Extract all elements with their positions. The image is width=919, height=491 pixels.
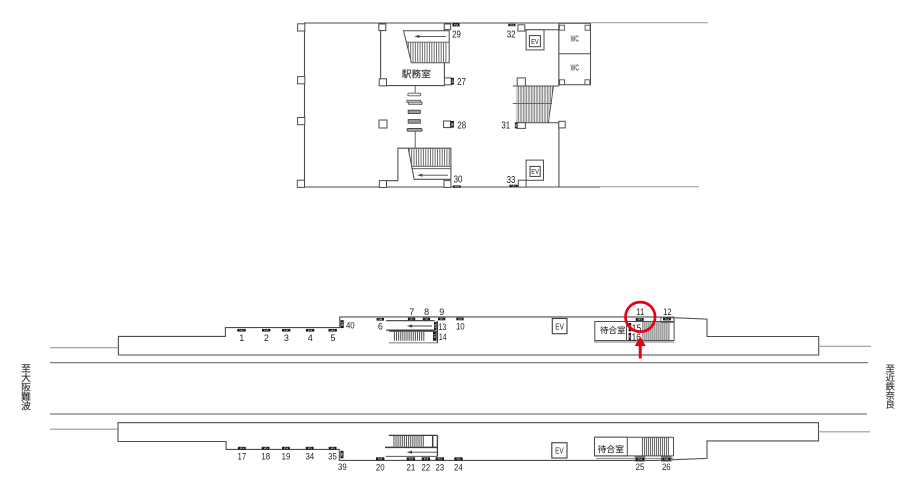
svg-text:32: 32 [507, 30, 516, 41]
svg-text:17: 17 [238, 451, 247, 461]
svg-text:11: 11 [636, 307, 644, 317]
svg-text:8: 8 [424, 307, 429, 317]
svg-text:40: 40 [346, 321, 355, 331]
svg-text:18: 18 [261, 451, 270, 461]
svg-text:20: 20 [376, 463, 385, 473]
svg-text:29: 29 [452, 29, 461, 40]
svg-text:21: 21 [407, 463, 416, 473]
svg-text:2: 2 [264, 333, 269, 343]
svg-text:27: 27 [457, 77, 466, 88]
svg-text:EV: EV [555, 446, 564, 456]
svg-text:22: 22 [422, 463, 431, 473]
svg-text:30: 30 [454, 175, 463, 186]
svg-text:3: 3 [284, 333, 289, 343]
svg-text:12: 12 [663, 307, 672, 317]
svg-text:WC: WC [571, 35, 580, 44]
svg-text:10: 10 [456, 322, 465, 332]
svg-text:23: 23 [435, 463, 444, 473]
svg-text:39: 39 [338, 462, 347, 472]
svg-text:31: 31 [501, 121, 510, 132]
svg-text:1: 1 [239, 333, 244, 343]
svg-text:9: 9 [439, 307, 444, 317]
svg-text:34: 34 [305, 451, 314, 461]
svg-text:25: 25 [636, 462, 645, 472]
svg-text:13: 13 [439, 322, 447, 332]
svg-text:6: 6 [378, 322, 383, 332]
svg-text:4: 4 [308, 333, 313, 343]
svg-text:35: 35 [328, 451, 337, 461]
svg-text:5: 5 [330, 333, 335, 343]
svg-text:EV: EV [531, 167, 539, 176]
svg-text:WC: WC [571, 64, 580, 73]
svg-text:33: 33 [507, 175, 516, 186]
svg-text:14: 14 [439, 332, 447, 342]
svg-text:EV: EV [555, 321, 564, 331]
svg-text:19: 19 [282, 451, 291, 461]
svg-text:24: 24 [454, 463, 463, 473]
svg-text:26: 26 [662, 462, 671, 472]
svg-text:7: 7 [409, 307, 414, 317]
svg-text:28: 28 [457, 120, 466, 131]
svg-text:EV: EV [531, 37, 539, 46]
